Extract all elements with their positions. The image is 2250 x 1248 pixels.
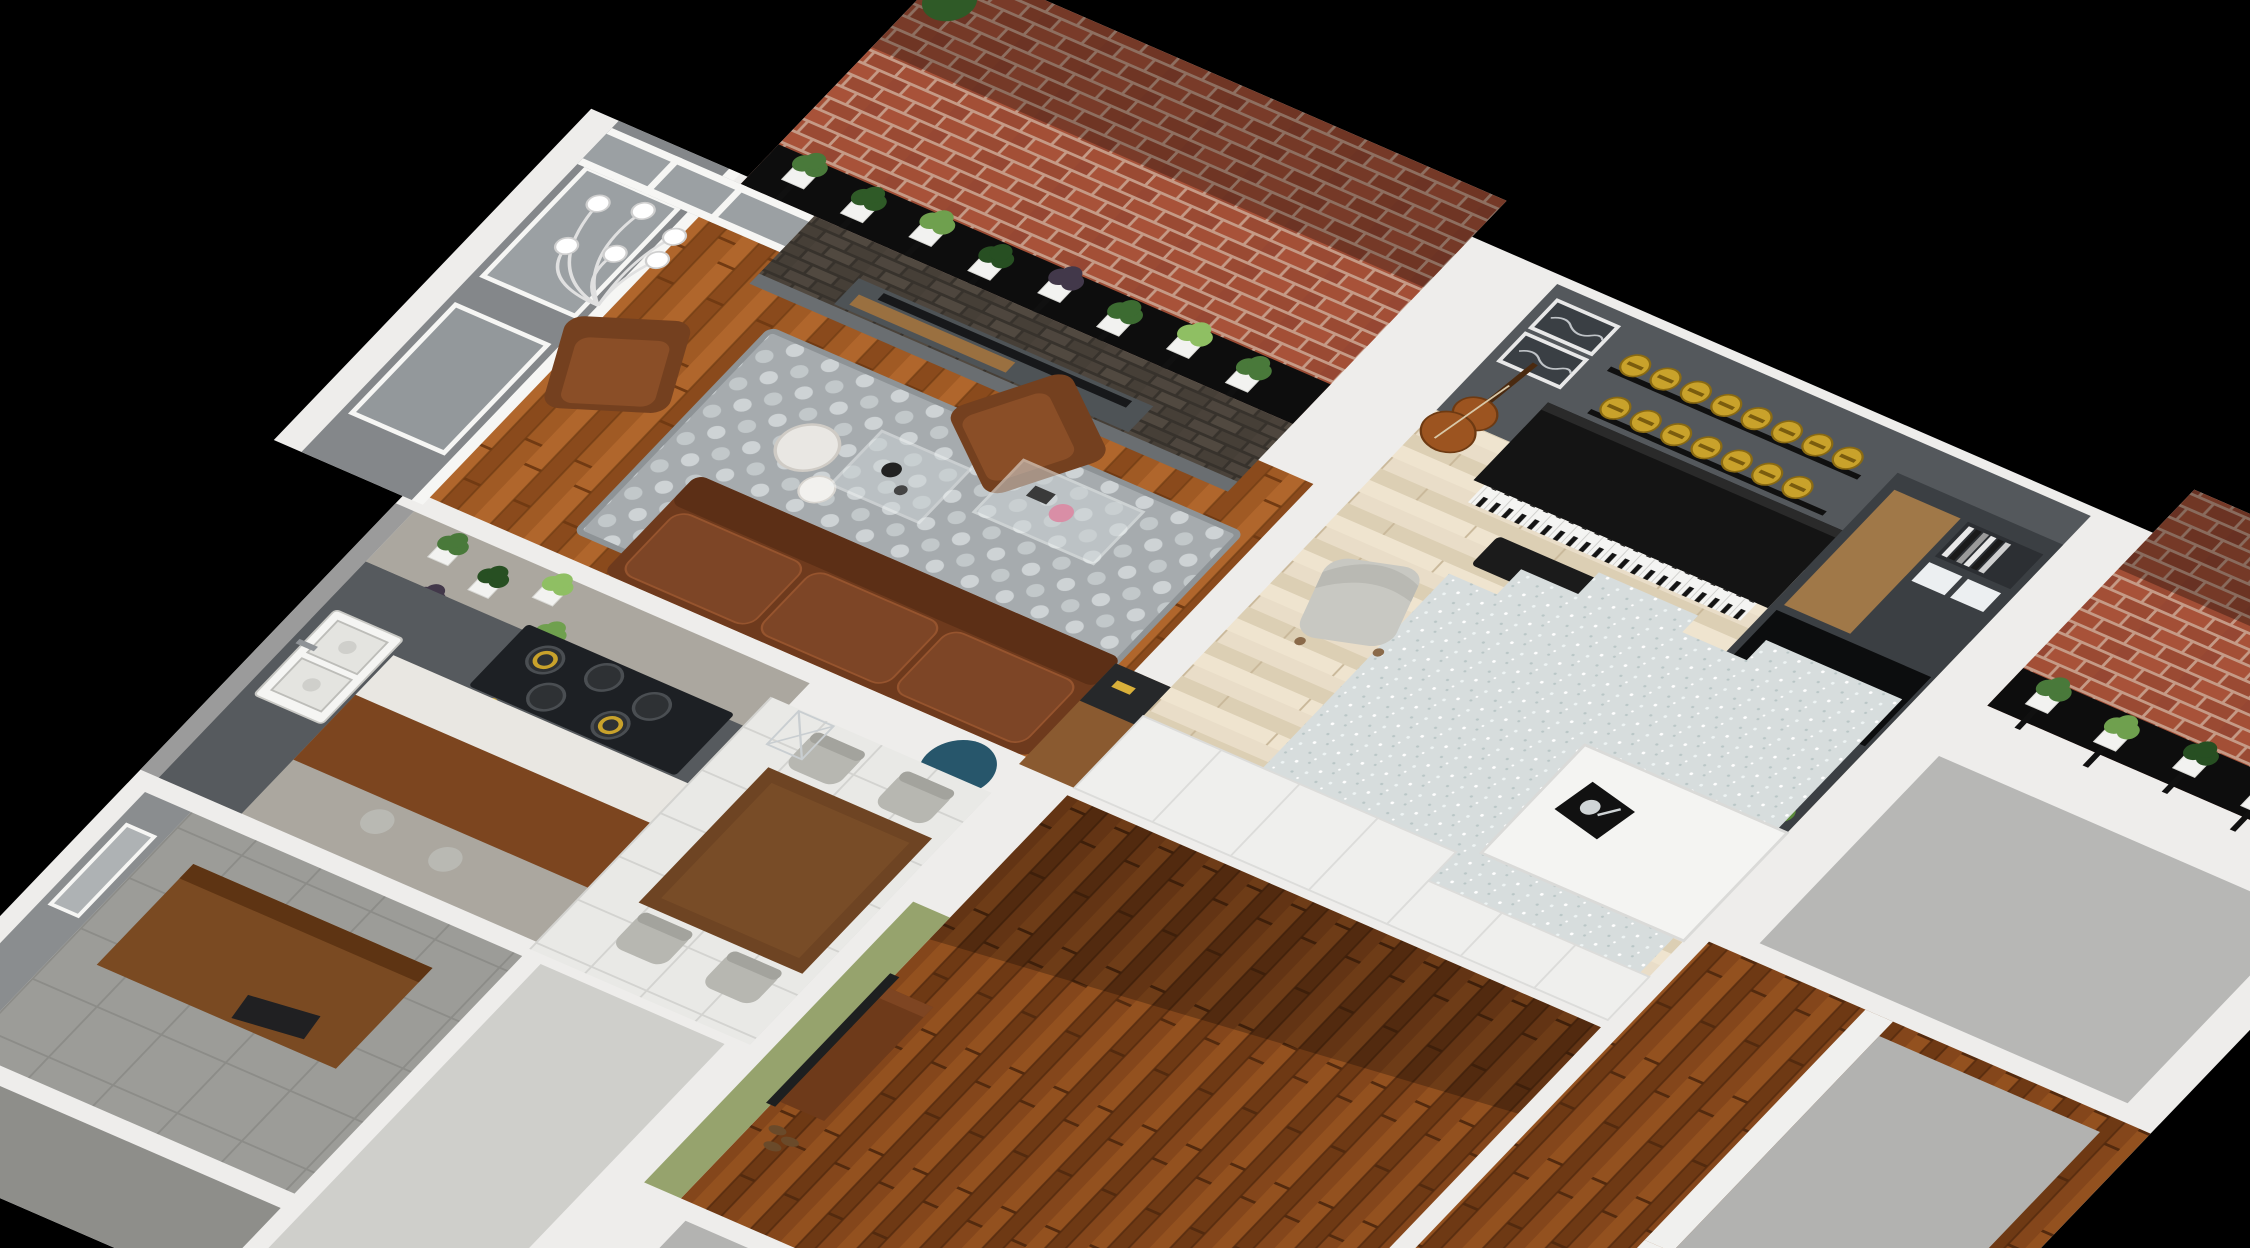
render-canvas <box>0 0 2250 1248</box>
apartment-cutaway-scene <box>0 0 2250 1248</box>
leather-armchair-left <box>541 315 694 414</box>
